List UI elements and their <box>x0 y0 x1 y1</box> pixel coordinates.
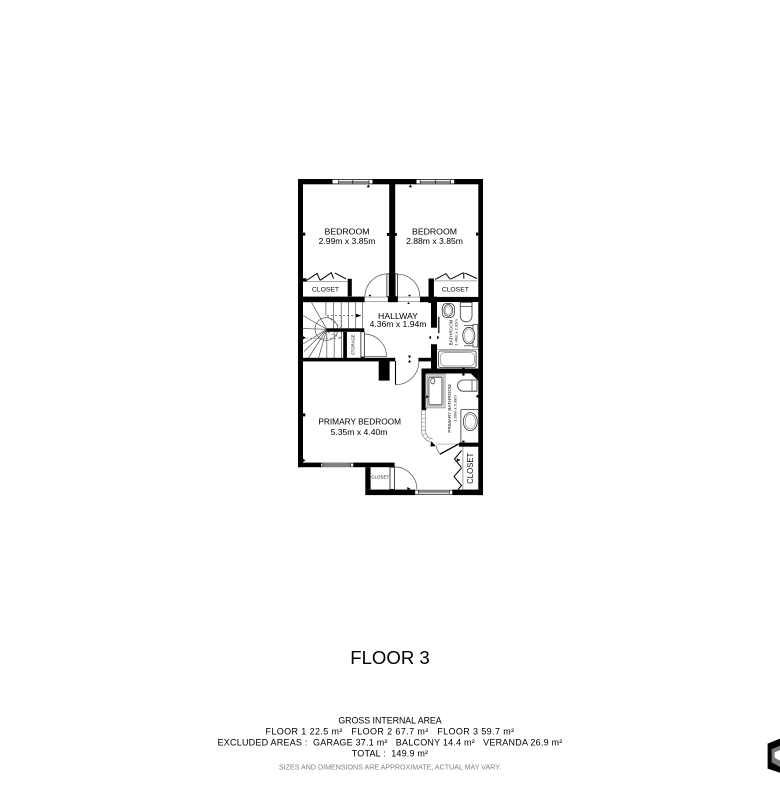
svg-text:TOTAL : 149.9 m²: TOTAL : 149.9 m² <box>352 748 428 758</box>
svg-text:CLOSET: CLOSET <box>466 452 475 483</box>
svg-text:FLOOR 3: FLOOR 3 <box>350 647 430 668</box>
svg-text:FLOOR 1 22.5 m² FLOOR 2 67.7: FLOOR 1 22.5 m² FLOOR 2 67.7 m² FLOOR 3 … <box>266 726 515 736</box>
svg-text:2.99m x 3.85m: 2.99m x 3.85m <box>319 236 376 246</box>
svg-text:SIZES AND DIMENSIONS ARE APPRO: SIZES AND DIMENSIONS ARE APPROXIMATE, AC… <box>279 764 501 772</box>
svg-text:CLOSET: CLOSET <box>312 287 339 294</box>
svg-text:5.35m x 4.40m: 5.35m x 4.40m <box>331 427 388 437</box>
svg-text:PRIMARY BATHROOM: PRIMARY BATHROOM <box>447 384 452 432</box>
svg-text:1.60m x 2.39m: 1.60m x 2.39m <box>452 395 457 422</box>
svg-text:PRIMARY BEDROOM: PRIMARY BEDROOM <box>318 416 401 426</box>
svg-text:EXCLUDED AREAS : GARAGE 37.1: EXCLUDED AREAS : GARAGE 37.1 m² BALCONY … <box>218 737 563 747</box>
svg-text:GROSS INTERNAL AREA: GROSS INTERNAL AREA <box>338 715 441 725</box>
svg-text:1.40m x 2.32m: 1.40m x 2.32m <box>454 319 459 346</box>
svg-text:2.88m x 3.85m: 2.88m x 3.85m <box>406 236 463 246</box>
svg-text:4.36m x 1.94m: 4.36m x 1.94m <box>370 319 427 329</box>
svg-text:CLOSET: CLOSET <box>442 287 469 294</box>
svg-text:STORAGE: STORAGE <box>350 334 355 355</box>
svg-text:CLOSET: CLOSET <box>371 475 389 480</box>
